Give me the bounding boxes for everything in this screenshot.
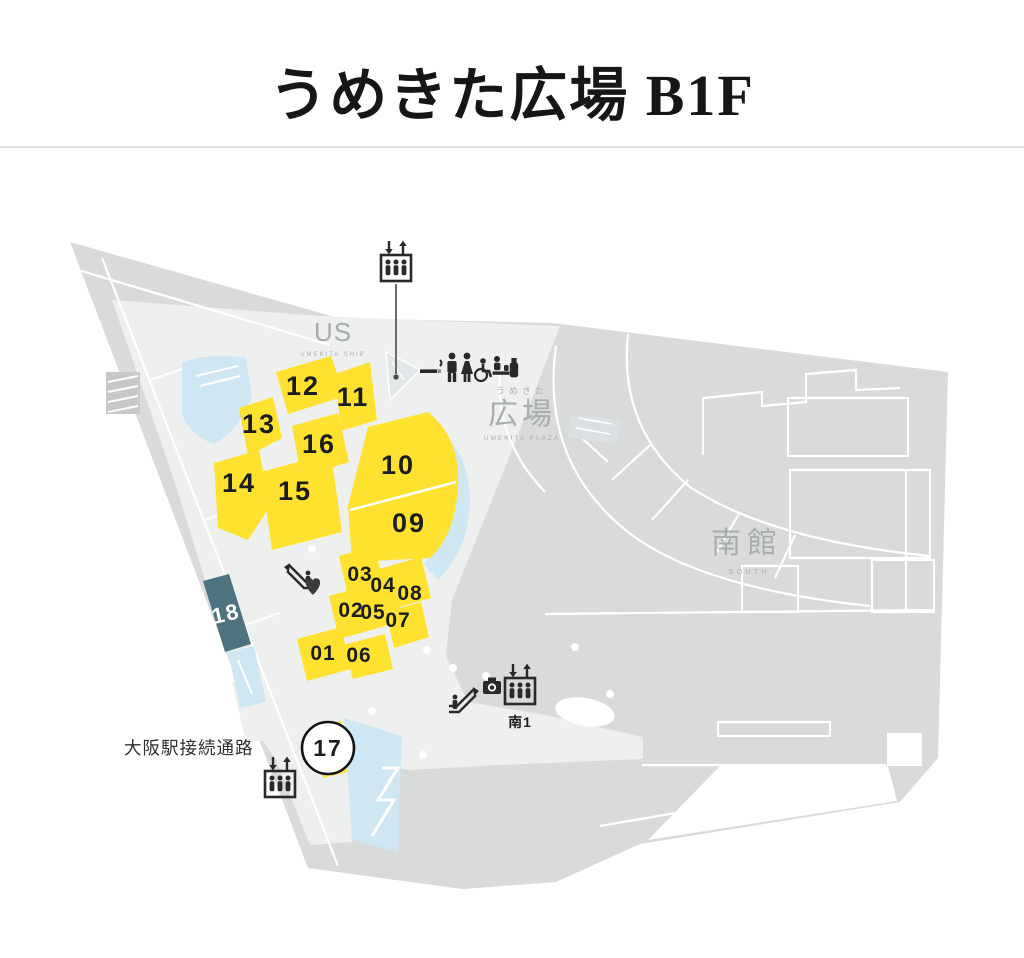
minamikan-label: 南館 — [711, 527, 783, 560]
minamikan-sub-label: SOUTH — [728, 567, 769, 576]
page-title: うめきた広場 B1F — [0, 48, 1024, 132]
shop-number-09: 09 — [392, 508, 426, 538]
shop-number-07: 07 — [385, 609, 410, 632]
title-divider — [0, 146, 1024, 148]
shop-number-13: 13 — [242, 409, 276, 439]
shop-number-10: 10 — [381, 450, 415, 480]
hiroba-label: 広場 — [488, 398, 556, 431]
shop-number-11: 11 — [337, 382, 370, 412]
osaka-station-passage-label: 大阪駅接続通路 — [124, 738, 254, 758]
shop-number-04: 04 — [370, 574, 395, 597]
shop-marker-17: 17 — [302, 722, 354, 774]
stairs-hatch — [106, 372, 140, 414]
us-logo-sub: UMEKITA SHIP — [300, 352, 366, 358]
hiroba-sub-label: UMEKITA PLAZA — [484, 435, 560, 442]
shop-number-01: 01 — [310, 642, 335, 665]
shop-number-03: 03 — [347, 563, 372, 586]
us-logo: US — [314, 317, 352, 347]
shop-number-12: 12 — [286, 371, 320, 401]
shop-number-06: 06 — [346, 644, 371, 667]
notch-cutout — [887, 733, 922, 766]
shop-number-08: 08 — [397, 582, 422, 605]
south-gate-1-label: 南1 — [508, 714, 532, 730]
shop-number-05: 05 — [360, 601, 385, 624]
floor-map-svg: 12 11 13 16 14 15 10 09 03 04 08 02 05 0… — [0, 0, 1024, 953]
floor-map: 12 11 13 16 14 15 10 09 03 04 08 02 05 0… — [0, 0, 1024, 953]
shop-number-15: 15 — [278, 476, 312, 506]
shop-number-14: 14 — [222, 468, 256, 498]
shop-number-16: 16 — [302, 429, 336, 459]
hiroba-kana-label: うめきた — [496, 386, 548, 396]
shop-number-17: 17 — [313, 735, 343, 761]
